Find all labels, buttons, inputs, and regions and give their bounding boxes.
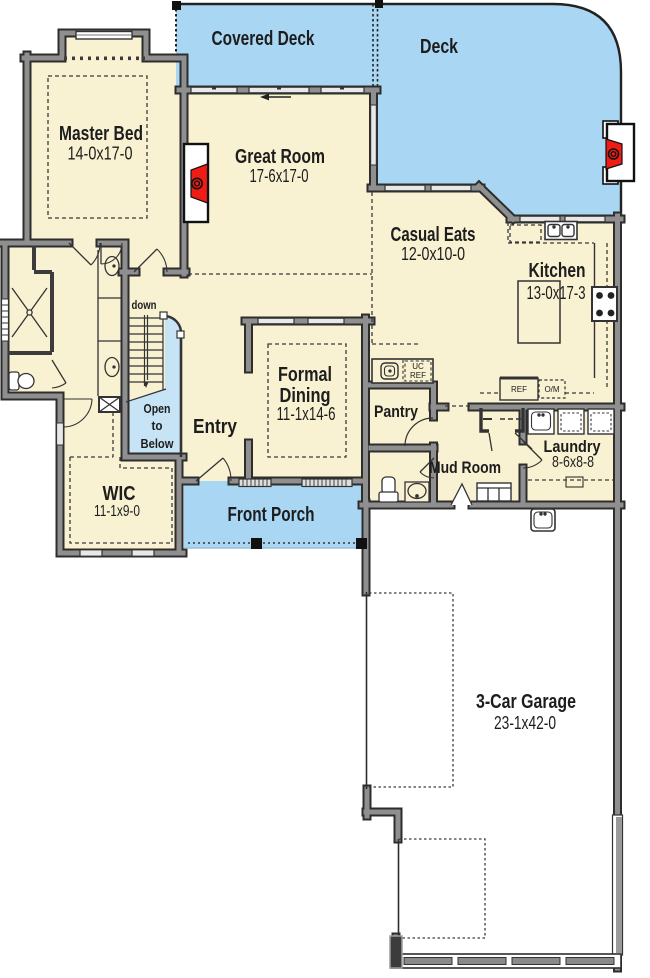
svg-text:UC: UC — [412, 362, 424, 371]
svg-text:23-1x42-0: 23-1x42-0 — [494, 712, 556, 733]
svg-text:8-6x8-8: 8-6x8-8 — [552, 454, 594, 471]
svg-text:O/M: O/M — [544, 385, 559, 394]
svg-text:Open: Open — [144, 401, 171, 416]
svg-text:11-1x9-0: 11-1x9-0 — [94, 503, 140, 520]
svg-text:Covered Deck: Covered Deck — [212, 28, 316, 50]
svg-text:Kitchen: Kitchen — [529, 260, 586, 282]
svg-text:Pantry: Pantry — [374, 402, 418, 421]
svg-text:Below: Below — [141, 436, 175, 451]
svg-text:REF: REF — [511, 385, 527, 394]
svg-text:REF: REF — [410, 371, 426, 380]
svg-text:13-0x17-3: 13-0x17-3 — [527, 282, 586, 303]
svg-text:Front Porch: Front Porch — [228, 504, 315, 526]
svg-text:Formal: Formal — [278, 364, 332, 386]
svg-text:Deck: Deck — [420, 36, 459, 58]
svg-text:11-1x14-6: 11-1x14-6 — [277, 403, 336, 424]
svg-text:down: down — [132, 298, 157, 312]
svg-text:3-Car Garage: 3-Car Garage — [476, 691, 576, 713]
svg-text:WIC: WIC — [103, 483, 136, 505]
svg-text:Mud Room: Mud Room — [429, 458, 501, 477]
svg-text:Entry: Entry — [193, 416, 238, 438]
svg-text:17-6x17-0: 17-6x17-0 — [250, 165, 309, 186]
svg-text:14-0x17-0: 14-0x17-0 — [68, 143, 133, 164]
svg-text:to: to — [152, 418, 163, 433]
svg-text:12-0x10-0: 12-0x10-0 — [401, 243, 465, 264]
